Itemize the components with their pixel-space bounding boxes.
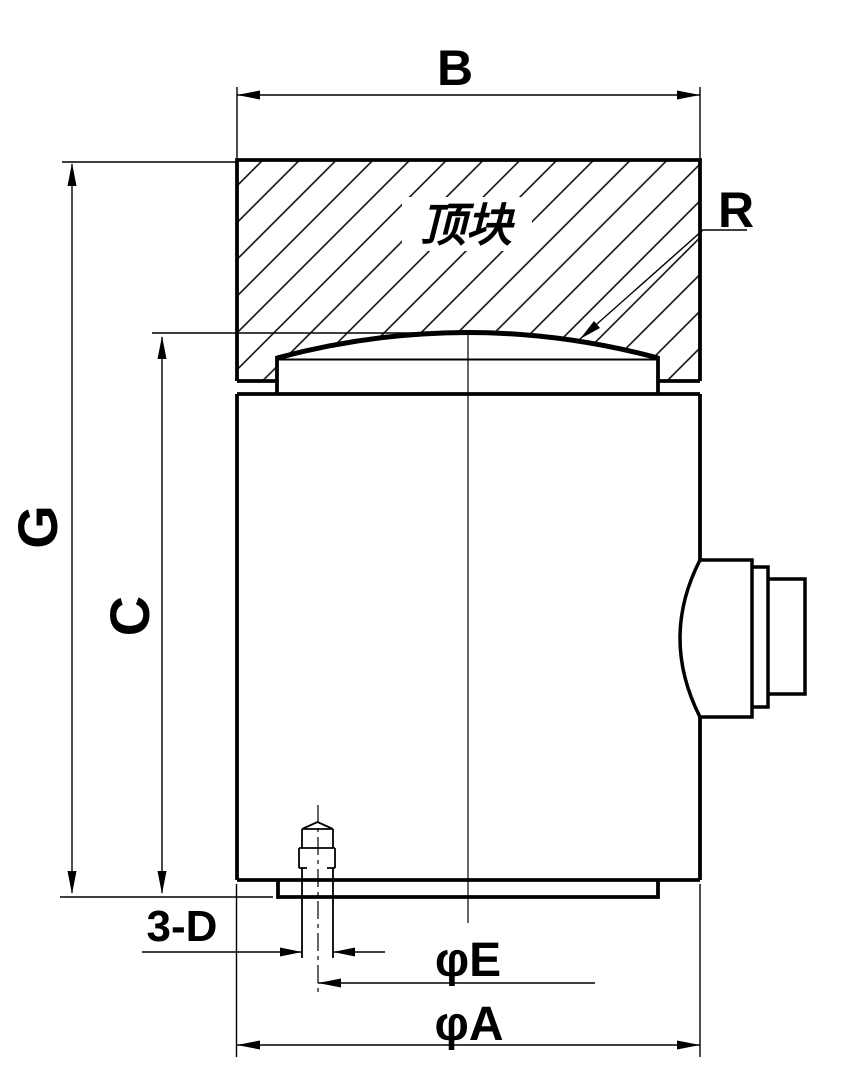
top-block-label: 顶块: [420, 199, 516, 251]
arrow-G-bottom: [68, 871, 77, 894]
arrow-3D-left: [280, 948, 302, 957]
cable-connector: [680, 560, 805, 717]
arrow-E-left: [318, 979, 341, 988]
dim-label-3D: 3-D: [147, 902, 218, 951]
bolt-outline: [299, 822, 335, 958]
connector-bulge: [680, 560, 700, 717]
arrow-B-left: [237, 91, 260, 100]
dim-label-R: R: [718, 182, 754, 238]
dim-label-B: B: [437, 40, 473, 96]
arrow-B-right: [677, 91, 700, 100]
arrow-G-top: [68, 163, 77, 186]
dim-label-C: C: [98, 596, 161, 636]
connector-step-2: [752, 567, 768, 707]
arrow-3D-right: [333, 948, 355, 957]
dim-label-G: G: [6, 505, 69, 549]
arrow-A-left: [237, 1041, 260, 1050]
dim-label-E: φE: [435, 934, 501, 987]
connector-step-3: [768, 579, 805, 694]
mounting-bolt: [299, 805, 335, 993]
arrow-A-right: [677, 1041, 700, 1050]
arrow-C-bottom: [158, 871, 167, 894]
connector-shell: [700, 560, 752, 717]
technical-drawing-canvas: 顶块: [0, 0, 852, 1074]
load-cell-dimension-drawing: 顶块: [0, 0, 852, 1074]
dim-label-A: φA: [435, 998, 504, 1051]
arrow-C-top: [158, 336, 167, 359]
load-cell-body: [237, 334, 700, 923]
